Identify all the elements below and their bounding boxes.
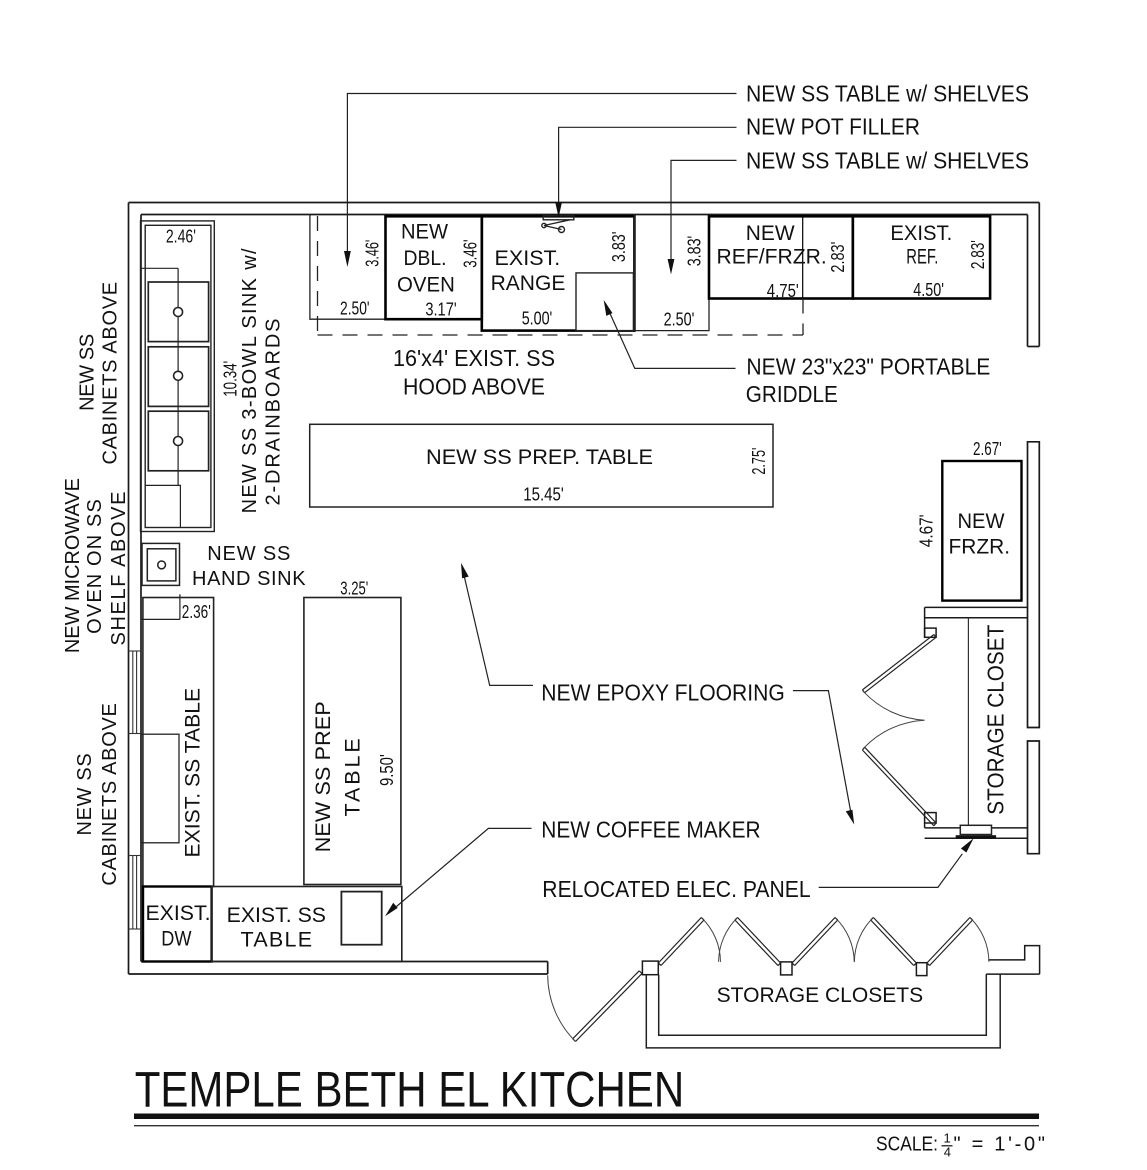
svg-text:EXIST.: EXIST. <box>146 901 211 925</box>
svg-text:4.67': 4.67' <box>916 514 936 547</box>
svg-text:OVEN ON SS: OVEN ON SS <box>84 499 106 634</box>
svg-text:NEW SS: NEW SS <box>207 543 290 565</box>
svg-text:EXIST. SS TABLE: EXIST. SS TABLE <box>181 688 205 858</box>
svg-text:4: 4 <box>944 1145 951 1160</box>
svg-text:RANGE: RANGE <box>491 271 566 295</box>
svg-text:TEMPLE BETH EL KITCHEN: TEMPLE BETH EL KITCHEN <box>135 1062 685 1118</box>
svg-text:SCALE:: SCALE: <box>876 1134 938 1156</box>
svg-text:9.50': 9.50' <box>377 754 397 786</box>
svg-text:2.36': 2.36' <box>182 602 211 622</box>
svg-text:3.17': 3.17' <box>425 300 456 320</box>
svg-text:" = 1'-0": " = 1'-0" <box>954 1134 1046 1156</box>
svg-text:2-DRAINBOARDS: 2-DRAINBOARDS <box>263 319 285 506</box>
svg-text:2.50': 2.50' <box>664 309 695 329</box>
svg-text:3.46': 3.46' <box>363 240 383 267</box>
svg-text:NEW MICROWAVE: NEW MICROWAVE <box>62 478 84 653</box>
svg-text:16'x4' EXIST. SS: 16'x4' EXIST. SS <box>393 345 555 371</box>
svg-text:NEW POT FILLER: NEW POT FILLER <box>746 114 920 140</box>
svg-text:3.25': 3.25' <box>340 578 368 598</box>
svg-text:HAND SINK: HAND SINK <box>192 568 306 590</box>
svg-text:5.00': 5.00' <box>522 309 553 329</box>
svg-text:REF/FRZR.: REF/FRZR. <box>717 245 827 269</box>
svg-text:NEW: NEW <box>746 221 795 245</box>
svg-text:REF.: REF. <box>906 245 938 269</box>
svg-text:10.34': 10.34' <box>221 361 241 397</box>
svg-text:RELOCATED ELEC. PANEL: RELOCATED ELEC. PANEL <box>542 876 810 902</box>
svg-text:EXIST.: EXIST. <box>495 246 561 270</box>
svg-text:NEW 23"x23" PORTABLE: NEW 23"x23" PORTABLE <box>746 354 990 380</box>
svg-text:NEW SS TABLE w/ SHELVES: NEW SS TABLE w/ SHELVES <box>746 80 1029 106</box>
svg-text:CABINETS ABOVE: CABINETS ABOVE <box>99 282 121 465</box>
svg-text:NEW COFFEE MAKER: NEW COFFEE MAKER <box>541 816 760 842</box>
svg-text:15.45': 15.45' <box>523 484 564 504</box>
svg-text:OVEN: OVEN <box>397 272 455 296</box>
svg-text:STORAGE CLOSET: STORAGE CLOSET <box>983 625 1009 815</box>
svg-text:NEW SS: NEW SS <box>74 753 96 835</box>
svg-text:NEW SS PREP: NEW SS PREP <box>311 701 335 852</box>
svg-text:NEW: NEW <box>401 220 449 244</box>
svg-text:NEW SS: NEW SS <box>76 334 98 411</box>
svg-text:3.46': 3.46' <box>460 239 480 267</box>
svg-text:NEW SS PREP. TABLE: NEW SS PREP. TABLE <box>426 445 653 469</box>
svg-text:1: 1 <box>944 1131 951 1146</box>
svg-text:DBL.: DBL. <box>404 246 447 270</box>
svg-text:FRZR.: FRZR. <box>949 535 1011 559</box>
svg-text:HOOD ABOVE: HOOD ABOVE <box>403 374 545 400</box>
svg-text:NEW SS 3-BOWL SINK w/: NEW SS 3-BOWL SINK w/ <box>239 248 261 513</box>
svg-text:2.50': 2.50' <box>340 298 370 318</box>
svg-text:NEW: NEW <box>958 509 1006 533</box>
svg-text:CABINETS ABOVE: CABINETS ABOVE <box>99 703 121 886</box>
svg-text:GRIDDLE: GRIDDLE <box>746 381 838 407</box>
svg-text:2.83': 2.83' <box>828 242 848 273</box>
svg-text:DW: DW <box>161 926 192 950</box>
svg-text:4.50': 4.50' <box>913 280 944 300</box>
svg-text:2.46': 2.46' <box>166 227 196 247</box>
svg-text:3.83': 3.83' <box>685 236 705 267</box>
svg-text:NEW SS TABLE w/ SHELVES: NEW SS TABLE w/ SHELVES <box>746 147 1029 173</box>
svg-text:NEW EPOXY FLOORING: NEW EPOXY FLOORING <box>541 679 785 705</box>
svg-text:3.83': 3.83' <box>609 232 629 263</box>
svg-text:STORAGE CLOSETS: STORAGE CLOSETS <box>717 983 924 1007</box>
svg-text:4.75': 4.75' <box>767 281 799 301</box>
svg-text:EXIST.: EXIST. <box>890 221 952 245</box>
svg-text:EXIST. SS: EXIST. SS <box>227 903 326 927</box>
svg-text:2.83': 2.83' <box>968 240 988 269</box>
svg-text:TABLE: TABLE <box>241 927 313 951</box>
svg-text:2.75': 2.75' <box>749 448 769 475</box>
svg-text:2.67': 2.67' <box>973 439 1002 459</box>
